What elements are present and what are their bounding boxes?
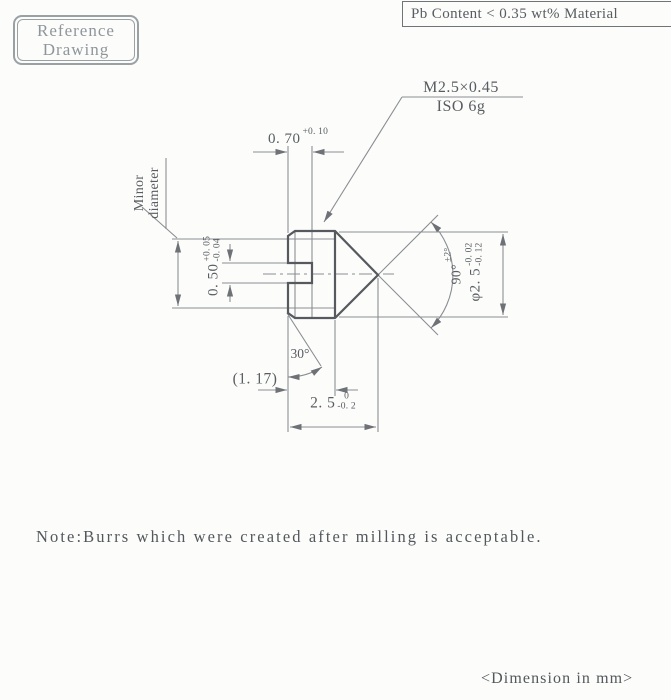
slot-width-tolerance: +0. 05 -0. 04: [204, 236, 223, 262]
slot-width-dimension: 0. 50 +0. 05 -0. 04: [206, 236, 225, 296]
reference-drawing-stamp-inner: Reference Drawing: [17, 19, 135, 61]
overall-length-dimension: 2. 5 0 -0. 2: [310, 395, 356, 414]
slot-depth-dimension: 0. 70 +0. 10: [268, 131, 328, 148]
stamp-line-2: Drawing: [43, 40, 109, 59]
slot-width-value: 0. 50: [206, 264, 223, 297]
outer-diameter-tolerance: -0. 02 -0. 12: [466, 242, 485, 265]
overall-length-tolerance: 0 -0. 2: [337, 393, 355, 412]
thread-tolerance-class: ISO 6g: [400, 98, 522, 116]
chamfer-angle-dimension: 30°: [291, 346, 310, 362]
thread-designation: M2.5×0.45: [400, 79, 522, 97]
drawing-canvas: [0, 0, 671, 700]
overall-length-value: 2. 5: [310, 395, 335, 412]
material-requirement-box: Pb Content < 0.35 wt% Material: [402, 1, 671, 27]
slot-depth-value: 0. 70: [268, 131, 301, 148]
units-note: <Dimension in mm>: [481, 670, 633, 688]
point-angle-dimension: 90° ±2°: [448, 248, 465, 285]
point-angle-value: 90°: [448, 264, 465, 284]
outer-diameter-value: φ2. 5: [468, 268, 485, 302]
drawing-sheet: Reference Drawing Pb Content < 0.35 wt% …: [0, 0, 671, 700]
stamp-line-1: Reference: [37, 21, 115, 40]
minor-diameter-label-line1: Minor: [132, 167, 147, 218]
minor-diameter-label-line2: diameter: [147, 167, 162, 218]
milling-note: Note:Burrs which were created after mill…: [36, 527, 543, 547]
minor-diameter-label: Minor diameter: [132, 167, 162, 218]
outer-diameter-dimension: φ2. 5 -0. 02 -0. 12: [468, 242, 487, 301]
slot-depth-tolerance: +0. 10: [303, 127, 329, 137]
point-angle-tolerance: ±2°: [444, 248, 454, 262]
head-length-ref-dimension: (1. 17): [233, 371, 278, 388]
reference-drawing-stamp: Reference Drawing: [13, 15, 139, 65]
